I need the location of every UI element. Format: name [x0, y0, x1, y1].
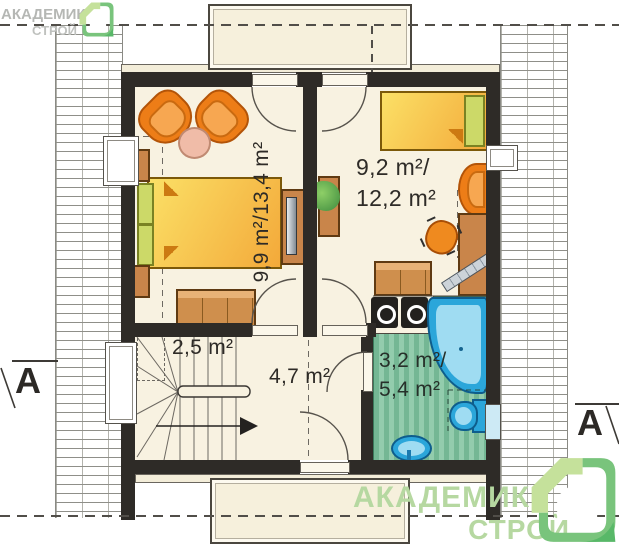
door-threshold [322, 325, 368, 336]
washing-machine-icon [401, 297, 428, 328]
sink-tap [407, 450, 411, 460]
door-threshold [363, 352, 373, 392]
window-pane [109, 346, 133, 420]
washer-drum [407, 305, 426, 324]
tv-screen-icon [286, 197, 297, 255]
wall-top-left [121, 72, 252, 87]
logo-top-left-line2: СТРОЙ [1, 23, 77, 38]
round-table-icon [178, 127, 211, 159]
area-label-line1: 9,2 m²/ [356, 152, 436, 183]
window-pane [490, 149, 514, 167]
wall-top-right [366, 72, 500, 87]
toilet-bowl-icon [449, 401, 478, 431]
window [105, 342, 137, 424]
armchair-seat [467, 171, 485, 208]
section-marker-left: A [15, 363, 41, 399]
door-threshold [252, 325, 298, 336]
blanket-fold [164, 181, 179, 196]
area-label-line2: 5,4 m² [379, 375, 446, 404]
dresser-icon [374, 261, 432, 296]
bathroom-window [485, 404, 501, 440]
area-label-hallway: 4,7 m² [269, 365, 330, 389]
window-pane [107, 140, 135, 182]
stair-headroom-line [137, 333, 165, 381]
toilet-bowl-inner [455, 407, 472, 425]
wall-bottom-left [121, 460, 300, 474]
armchair-icon [458, 163, 489, 216]
wall-bottom-right [348, 460, 500, 474]
window [103, 136, 139, 186]
area-label-staircase: 2,5 m² [172, 336, 233, 360]
dresser-icon [176, 289, 256, 327]
logo-house-icon [78, 1, 115, 38]
door-threshold [300, 462, 350, 473]
roof-hatch-right [500, 25, 568, 518]
area-label-bedroom-right: 9,2 m²/ 12,2 m² [356, 152, 436, 214]
roof-hatch-left [55, 25, 123, 518]
blanket-fold [448, 129, 463, 144]
knee-line [308, 340, 309, 458]
balcony [208, 4, 412, 70]
wall-bathroom-stub [361, 337, 373, 352]
logo-house-icon [528, 452, 619, 548]
washer-drum [377, 305, 396, 324]
section-tick-right [606, 406, 619, 444]
door-threshold [252, 74, 298, 86]
logo-bottom-right-line1: АКАДЕМИК [353, 481, 525, 515]
balcony-center-dashed-line [371, 26, 373, 72]
bathtub-drain [459, 347, 463, 351]
section-tick-left [1, 368, 15, 408]
door-threshold [322, 74, 368, 86]
wall-hall-left [135, 323, 252, 337]
wall-right [486, 72, 500, 520]
area-label-bedroom-left: 9,9 m²/13,4 m² [250, 127, 274, 297]
section-marker-right: A [577, 405, 603, 441]
bed-pillow [464, 95, 485, 147]
area-label-bathroom: 3,2 m²/ 5,4 m² [379, 346, 446, 404]
wall-bathroom-left [361, 390, 373, 460]
area-label-line1: 3,2 m²/ [379, 346, 446, 375]
logo-top-left-line1: АКАДЕМИК [1, 6, 77, 23]
sink-icon [391, 435, 432, 462]
headboard-panel [137, 183, 154, 225]
area-label-line2: 12,2 m² [356, 183, 436, 214]
sink-basin [398, 441, 425, 456]
headboard-panel [137, 224, 154, 266]
floor-plan-page: 9,9 m²/13,4 m² 9,2 m²/ 12,2 m² 2,5 m² 4,… [0, 0, 619, 548]
window [486, 145, 518, 171]
wall-center [303, 72, 317, 337]
blanket-fold [164, 246, 179, 261]
